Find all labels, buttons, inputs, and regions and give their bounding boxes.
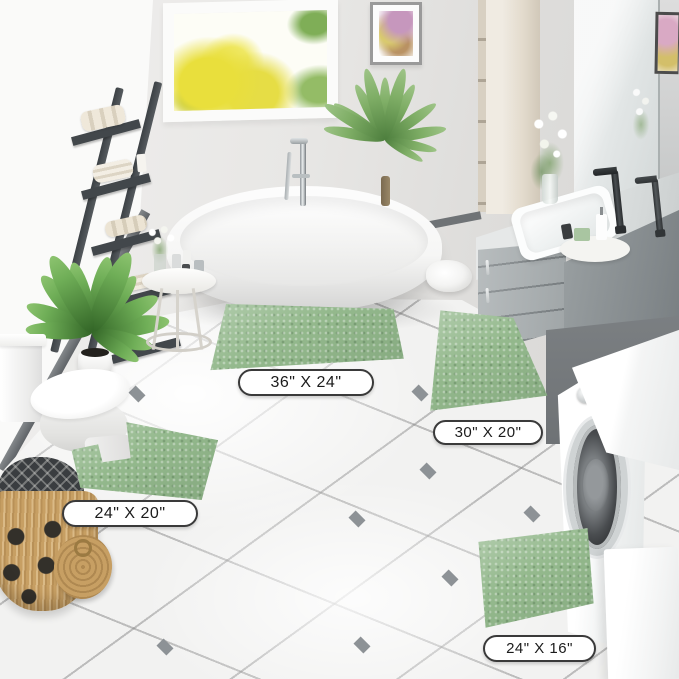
window bbox=[163, 0, 338, 122]
wall-art-frame bbox=[370, 2, 422, 65]
table-top bbox=[142, 268, 216, 294]
green-jar bbox=[574, 228, 590, 241]
side-table bbox=[138, 224, 222, 356]
faucet-base bbox=[615, 225, 627, 234]
faucet-handle bbox=[292, 174, 310, 178]
bathroom-scene: 36" X 24" 30" X 20" 24" X 20" 24" X 16" bbox=[0, 0, 679, 679]
palm-trunk bbox=[381, 176, 390, 206]
toiletry-tray bbox=[560, 236, 630, 262]
soap-pump bbox=[600, 207, 603, 215]
hand-shower bbox=[284, 152, 291, 200]
wall-art-frame-right bbox=[654, 12, 679, 74]
faucet-base bbox=[655, 229, 666, 237]
freestanding-tub-faucet bbox=[278, 136, 322, 208]
table-ring-base bbox=[146, 332, 212, 352]
sink-faucet-reflection bbox=[634, 171, 678, 241]
palm-plant bbox=[333, 72, 445, 212]
toilet-tank-lid bbox=[0, 334, 46, 346]
counter-flower-vase bbox=[522, 108, 578, 208]
glass-vase bbox=[542, 174, 558, 204]
window-view-trees bbox=[174, 10, 327, 111]
mirror-flower-reflection bbox=[626, 80, 656, 154]
size-label-24x16: 24" X 16" bbox=[483, 635, 596, 662]
faucet-pole bbox=[651, 178, 663, 234]
towel bbox=[426, 260, 472, 292]
white-cabinet bbox=[604, 547, 679, 679]
soap-dispenser bbox=[596, 214, 607, 240]
wall-art-painting bbox=[379, 11, 413, 56]
faucet-pole bbox=[611, 170, 624, 230]
washer-drum bbox=[583, 459, 609, 511]
size-label-30x20: 30" X 20" bbox=[433, 420, 543, 445]
size-label-24x20: 24" X 20" bbox=[62, 500, 198, 527]
toiletry-bottle bbox=[136, 154, 147, 173]
faucet-spout bbox=[290, 138, 308, 144]
basket-lid-handle bbox=[74, 539, 92, 557]
size-label-36x24: 36" X 24" bbox=[238, 369, 374, 396]
